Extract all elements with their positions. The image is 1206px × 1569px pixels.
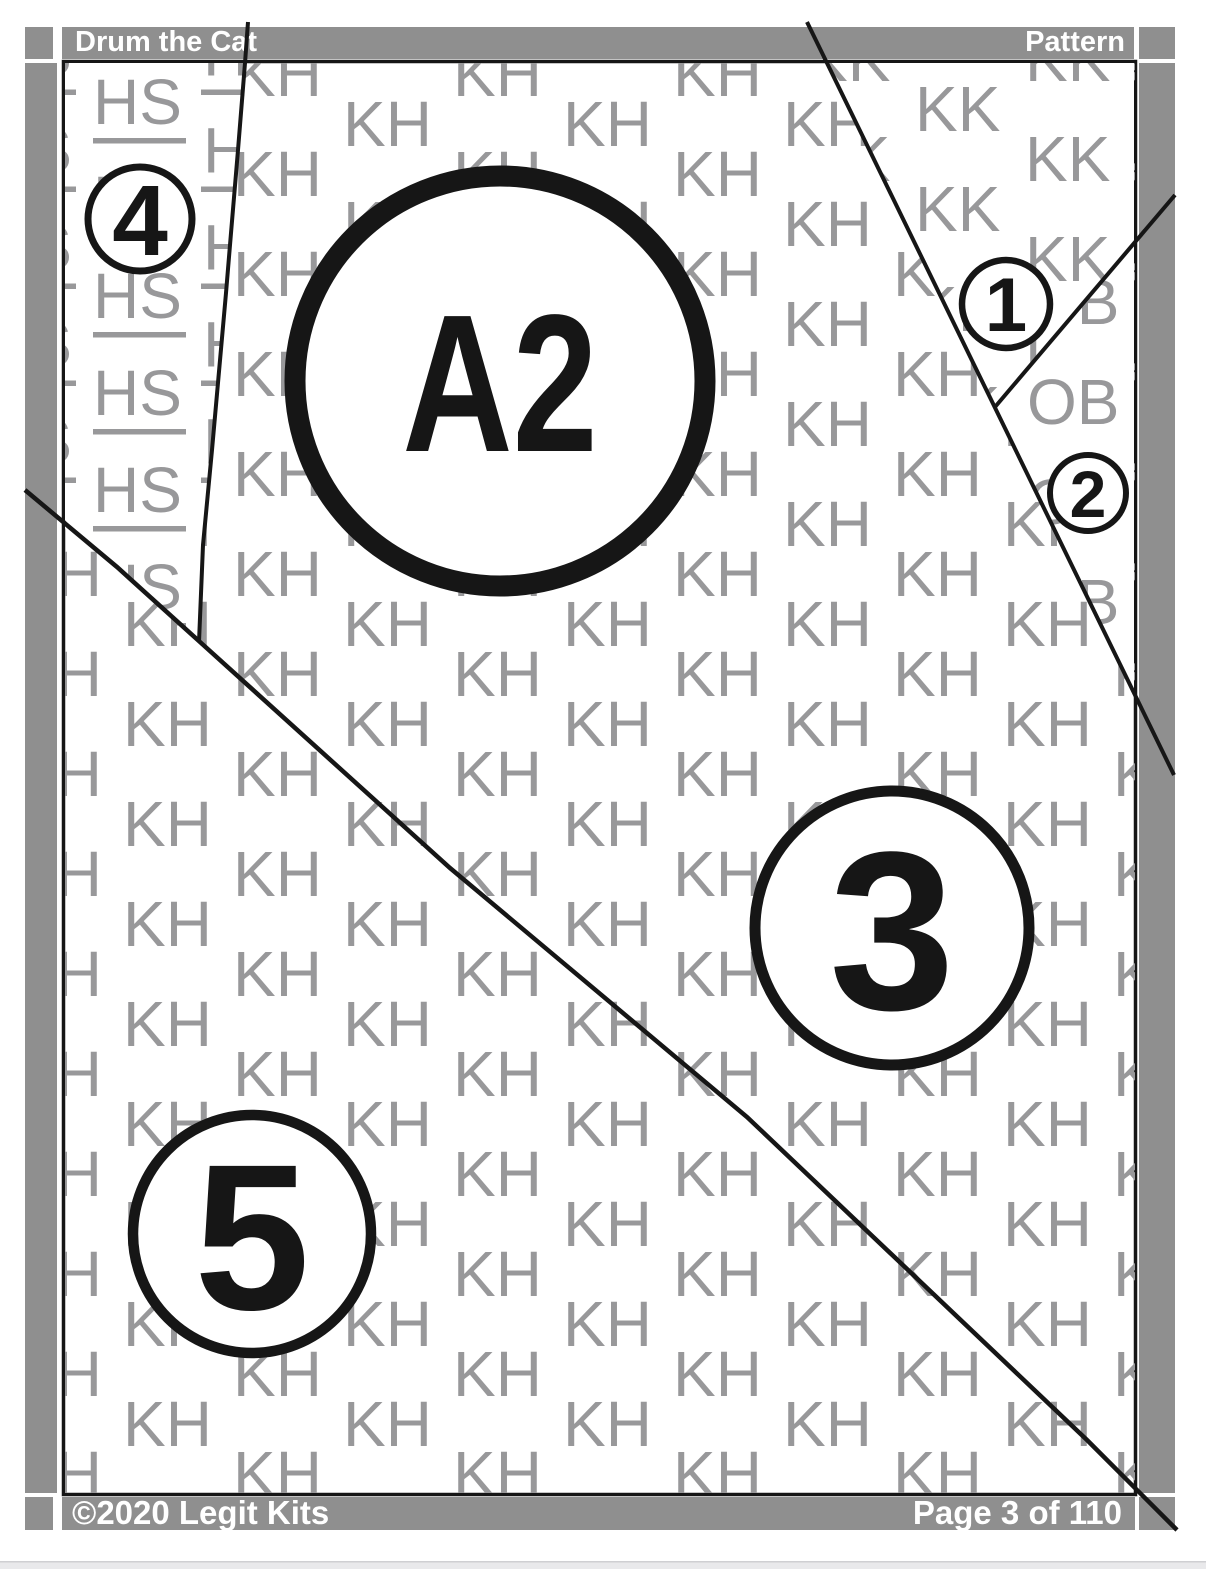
pattern-page: KH KH HS HS KK KK KK OB OB Drum the Cat … <box>0 0 1206 1569</box>
corner-square-top-right <box>1139 27 1175 59</box>
piece-circle-a2: A2 <box>295 176 705 586</box>
corner-square-bottom-left <box>25 1497 53 1530</box>
piece-label: A2 <box>402 275 597 494</box>
bottom-strip-edge <box>0 1561 1206 1563</box>
section-circle-2: 2 <box>1050 455 1126 531</box>
pattern-canvas: KH KH HS HS KK KK KK OB OB Drum the Cat … <box>0 0 1206 1569</box>
left-margin-strip <box>25 63 57 1493</box>
section-circle-3: 3 <box>755 791 1029 1065</box>
section-4-label: 4 <box>112 165 168 277</box>
bottom-strip <box>0 1563 1206 1569</box>
header-right-label: Pattern <box>1025 26 1125 58</box>
section-circle-1: 1 <box>962 260 1050 348</box>
right-margin-strip <box>1139 63 1175 1493</box>
corner-square-top-left <box>25 27 53 59</box>
footer-copyright: ©2020 Legit Kits <box>72 1494 329 1531</box>
section-circle-5: 5 <box>133 1115 371 1354</box>
section-2-label: 2 <box>1070 457 1107 531</box>
section-3-label: 3 <box>829 804 955 1057</box>
section-5-label: 5 <box>194 1122 310 1354</box>
header-title: Drum the Cat <box>75 26 257 58</box>
section-circle-4: 4 <box>88 165 192 277</box>
section-1-label: 1 <box>985 263 1027 348</box>
footer-page-indicator: Page 3 of 110 <box>913 1494 1122 1531</box>
